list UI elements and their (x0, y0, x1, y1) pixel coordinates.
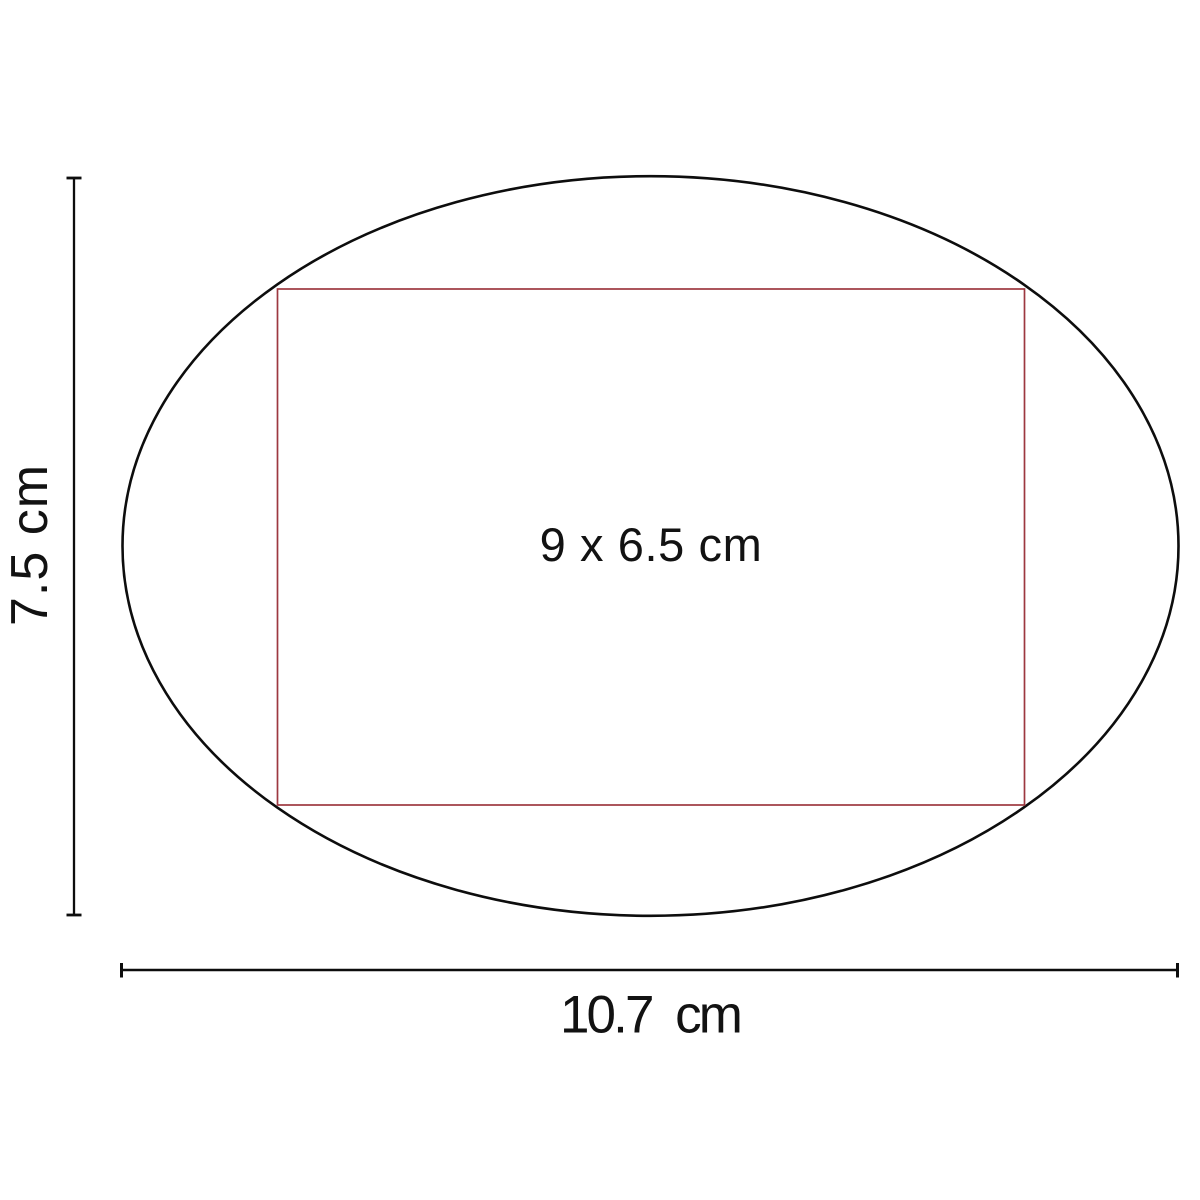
svg-text:10.7 cm: 10.7 cm (560, 986, 740, 1045)
svg-text:9 x 6.5 cm: 9 x 6.5 cm (540, 518, 763, 571)
svg-text:7.5 cm: 7.5 cm (1, 464, 59, 626)
